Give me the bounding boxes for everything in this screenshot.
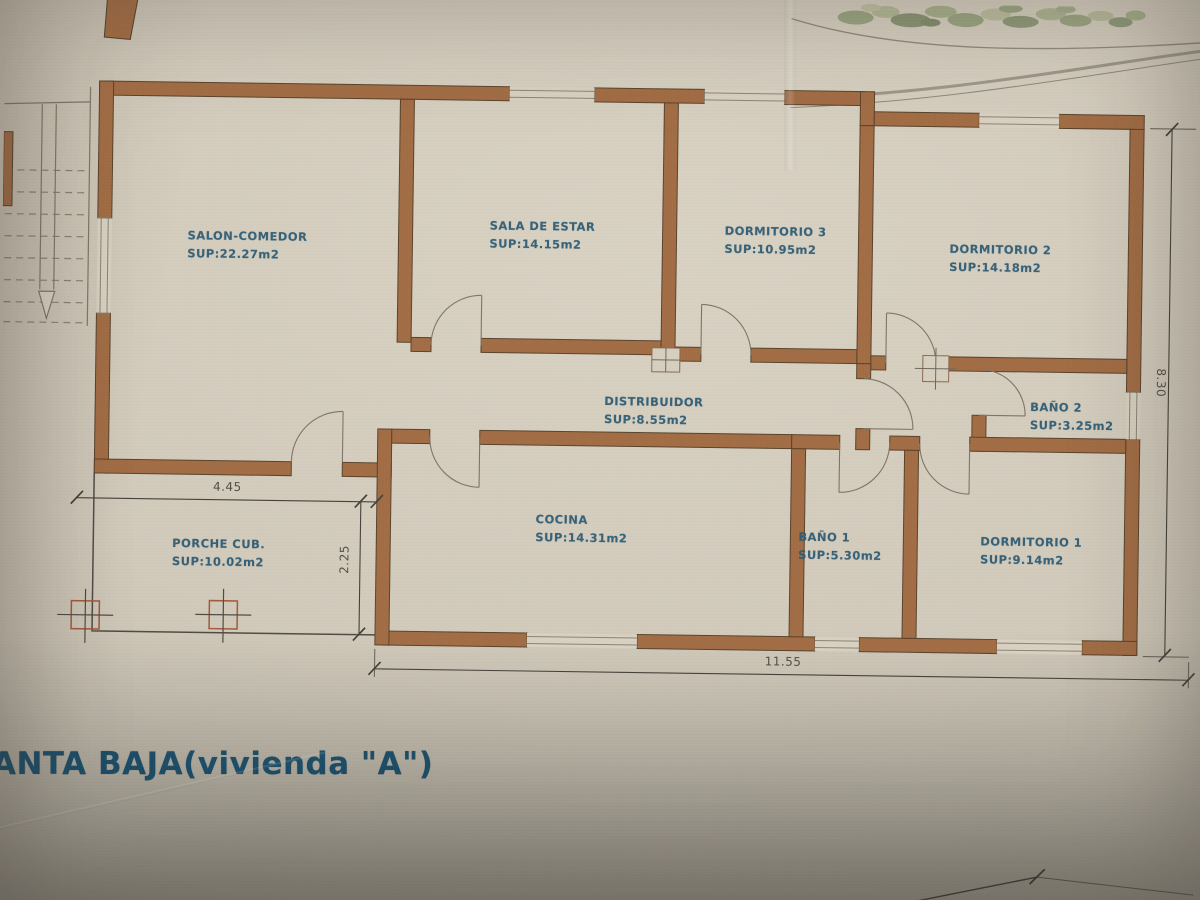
room-name: DORMITORIO 2 [949,241,1051,260]
room-label-sala-de-estar: SALA DE ESTAR SUP:14.15m2 [489,217,595,254]
room-label-bano-1: BAÑO 1 SUP:5.30m2 [798,529,882,566]
room-name: DORMITORIO 1 [980,533,1082,552]
room-name: BAÑO 1 [798,529,882,548]
dimension-building-depth: 8.30 [1154,368,1168,397]
room-name: PORCHE CUB. [172,535,265,554]
room-area: SUP:14.15m2 [489,235,595,254]
room-label-bano-2: BAÑO 2 SUP:3.25m2 [1030,399,1114,436]
floorplan-photo: SALON-COMEDOR SUP:22.27m2 SALA DE ESTAR … [0,0,1200,900]
sheet-title: ANTA BAJA(vivienda "A") [0,746,433,782]
room-area: SUP:14.18m2 [949,259,1051,278]
room-name: COCINA [535,511,627,530]
room-name: DISTRIBUIDOR [604,393,703,412]
room-label-porche-cub: PORCHE CUB. SUP:10.02m2 [172,535,265,572]
room-area: SUP:3.25m2 [1030,417,1114,436]
site-vegetation-texture [838,2,1146,30]
room-name: SALA DE ESTAR [490,217,596,236]
room-area: SUP:5.30m2 [798,547,882,566]
room-area: SUP:8.55m2 [604,411,703,430]
room-name: DORMITORIO 3 [725,223,827,242]
room-area: SUP:10.02m2 [172,553,265,572]
room-label-dormitorio-2: DORMITORIO 2 SUP:14.18m2 [949,241,1051,278]
dimension-porch-depth: 2.25 [337,545,351,574]
detail-lines-bottom-right [891,867,1196,900]
room-label-cocina: COCINA SUP:14.31m2 [535,511,627,548]
room-label-dormitorio-3: DORMITORIO 3 SUP:10.95m2 [724,223,826,260]
porch-columns [57,586,252,645]
staircase [1,86,90,326]
room-area: SUP:10.95m2 [724,241,826,260]
room-area: SUP:9.14m2 [980,551,1082,570]
stair-direction-arrow-icon [38,291,54,318]
room-area: SUP:22.27m2 [187,245,307,264]
room-name: SALON-COMEDOR [187,227,307,246]
room-label-distribuidor: DISTRIBUIDOR SUP:8.55m2 [604,393,704,430]
room-label-salon-comedor: SALON-COMEDOR SUP:22.27m2 [187,227,307,264]
room-label-dormitorio-1: DORMITORIO 1 SUP:9.14m2 [980,533,1082,570]
dimension-building-width: 11.55 [765,654,802,669]
room-area: SUP:14.31m2 [535,529,627,548]
dimension-porch-width: 4.45 [213,480,242,494]
room-name: BAÑO 2 [1030,399,1114,418]
